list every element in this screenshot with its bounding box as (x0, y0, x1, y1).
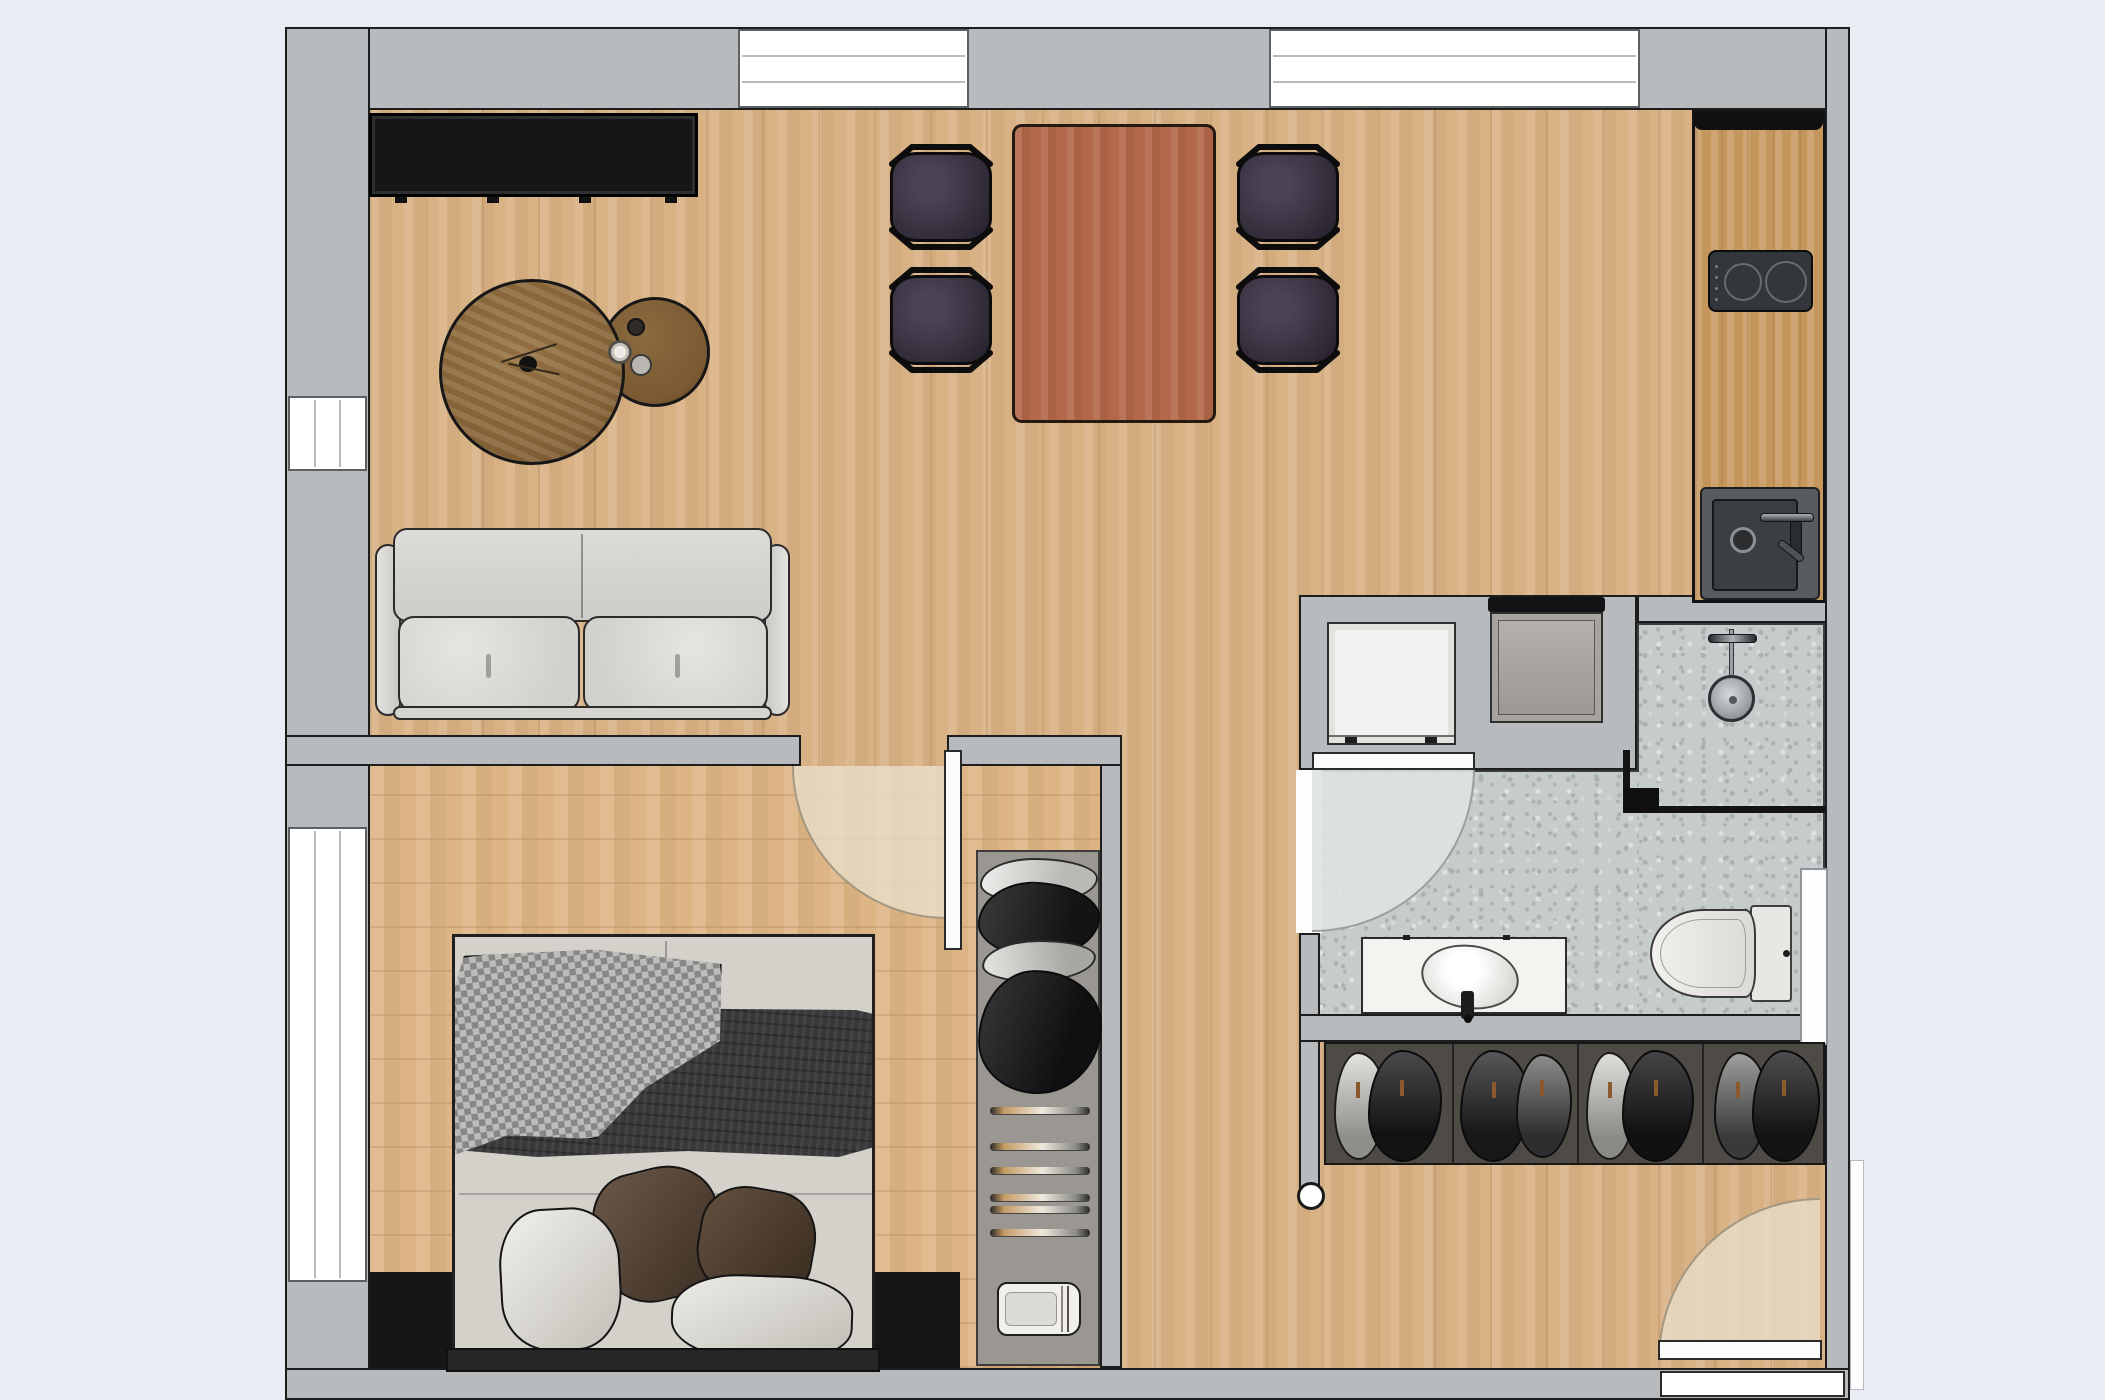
empty-hanger (990, 1107, 1090, 1114)
window-frame-line (339, 400, 341, 467)
toilet-flush-dot (1783, 950, 1790, 957)
dining-table (1012, 124, 1216, 423)
bedroom-divider-wall-right (947, 735, 1122, 766)
towel-inner (1005, 1292, 1057, 1326)
window-frame-line (742, 81, 965, 83)
washing-machine (1327, 622, 1456, 745)
closet-clothes-dark (1368, 1050, 1442, 1162)
closet-divider (1702, 1044, 1704, 1165)
closet-clothes-dark (1622, 1050, 1694, 1162)
kitchen-sink (1700, 487, 1820, 600)
dining-chair (886, 138, 996, 256)
window-top-left (738, 29, 969, 108)
shower-head (1708, 675, 1755, 722)
cooktop-control-dot (1715, 265, 1718, 268)
sofa-seat-cushion (583, 616, 768, 712)
vanity-faucet-knob (1464, 1015, 1472, 1023)
window-top-right (1269, 29, 1640, 108)
chair-seat (1237, 275, 1339, 365)
window-frame-line (314, 400, 316, 467)
dryer-panel (1498, 620, 1595, 715)
chair-seat (890, 152, 992, 242)
cooktop (1708, 250, 1813, 312)
sofa-base (393, 706, 772, 720)
hanger-hook (1356, 1082, 1360, 1098)
cushion-tuft (486, 654, 491, 678)
tv-console-foot (395, 197, 407, 203)
closet-clothes-gray (1516, 1054, 1572, 1158)
pillow-white (496, 1205, 624, 1354)
hanger-hook (1540, 1080, 1544, 1096)
cushion-tuft (675, 654, 680, 678)
toilet-seat-line (1660, 919, 1746, 988)
closet-divider (1452, 1044, 1454, 1165)
tv-console-foot (665, 197, 677, 203)
empty-hanger (990, 1194, 1090, 1201)
vanity-handle-dot (1403, 935, 1410, 940)
bathroom-left-wall (1299, 933, 1320, 1190)
hanger-hook (1492, 1082, 1496, 1098)
chair-seat (1237, 152, 1339, 242)
entry-door-opening (1660, 1371, 1845, 1397)
window-frame-line (314, 831, 316, 1278)
service-duct (1800, 868, 1828, 1045)
toilet (1650, 905, 1792, 1002)
bedroom-door-leaf (944, 750, 962, 950)
floor-plan (0, 0, 2105, 1400)
bedroom-divider-wall (285, 735, 801, 766)
hanging-clothes-dark (977, 969, 1103, 1095)
right-wall (1825, 27, 1850, 1399)
toilet-bowl (1650, 909, 1756, 998)
tv-console (369, 113, 698, 197)
sofa (375, 528, 790, 722)
hanger-hook (1654, 1080, 1658, 1096)
window-left-bedroom (288, 827, 367, 1282)
faucet-lever (1760, 513, 1814, 522)
coffee-table-large (439, 279, 625, 465)
empty-hanger (990, 1143, 1090, 1150)
cooktop-control-dot (1715, 287, 1718, 290)
counter-top-edge (1694, 112, 1823, 130)
door-stop-column (1297, 1182, 1325, 1210)
cooktop-control-dot (1715, 276, 1718, 279)
tv-console-foot (579, 197, 591, 203)
vanity (1361, 937, 1567, 1014)
empty-hanger (990, 1206, 1090, 1213)
empty-hanger (990, 1167, 1090, 1174)
towel-fold-line (1061, 1286, 1063, 1332)
dryer-top-bar (1488, 597, 1605, 612)
exterior-entry-recess (1850, 1160, 1864, 1390)
hanger-hook (1608, 1082, 1612, 1098)
window-frame-line (742, 55, 965, 57)
chair-seat (890, 275, 992, 365)
closet-divider (1577, 1044, 1579, 1165)
bedroom-wardrobe (976, 850, 1100, 1366)
entry-door-leaf (1658, 1340, 1822, 1360)
side-table-cup (608, 340, 632, 364)
hanger-hook (1782, 1080, 1786, 1096)
cooktop-burner (1724, 263, 1762, 301)
shower-valve-bar (1708, 634, 1757, 643)
entry-closet (1324, 1042, 1825, 1165)
bed-footboard (446, 1348, 880, 1372)
washer-clip (1345, 737, 1357, 743)
window-frame-line (1273, 55, 1636, 57)
vanity-faucet (1461, 991, 1474, 1019)
hanger-hook (1400, 1080, 1404, 1096)
empty-hanger (990, 1229, 1090, 1236)
dryer (1490, 612, 1603, 723)
window-frame-line (339, 831, 341, 1278)
bathroom-bottom-wall (1299, 1014, 1825, 1042)
dining-chair (1233, 138, 1343, 256)
sofa-seat-cushion (398, 616, 580, 712)
side-table-bowl-dark (627, 318, 645, 336)
hanger-hook (1736, 1082, 1740, 1098)
closet-clothes-dark (1752, 1050, 1820, 1162)
headboard-side-unit-right (873, 1272, 960, 1368)
sink-drain (1730, 527, 1756, 553)
towel-fold-line (1067, 1286, 1069, 1332)
bed (452, 934, 875, 1368)
shower-door-profile (1625, 788, 1659, 813)
dining-chair (1233, 261, 1343, 379)
side-table-plate (630, 354, 652, 376)
vanity-handle-dot (1503, 935, 1510, 940)
window-left-upper (288, 396, 367, 471)
tv-console-foot (487, 197, 499, 203)
bottom-wall (285, 1368, 1850, 1400)
bathroom-door-leaf (1312, 752, 1475, 770)
shower-head-center (1729, 696, 1737, 704)
cooktop-control-dot (1715, 298, 1718, 301)
cooktop-burner (1765, 261, 1807, 303)
washer-clip (1425, 737, 1437, 743)
sofa-backrest-seam (581, 534, 583, 618)
folded-towels (997, 1282, 1081, 1336)
window-frame-line (1273, 81, 1636, 83)
closet-back-wall (1100, 764, 1122, 1368)
dining-chair (886, 261, 996, 379)
